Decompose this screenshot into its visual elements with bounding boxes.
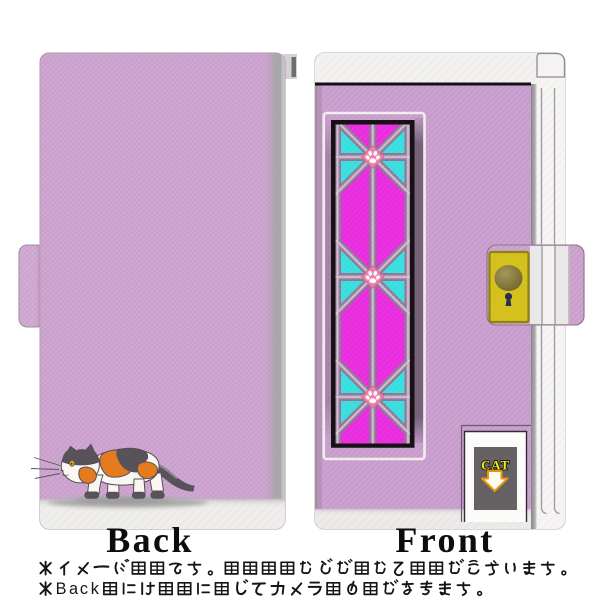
- svg-text:Front: Front: [395, 520, 494, 560]
- svg-text:B: B: [56, 580, 67, 598]
- svg-text:Back: Back: [106, 520, 194, 560]
- svg-text:c: c: [80, 580, 88, 598]
- svg-text:a: a: [69, 580, 79, 598]
- svg-text:k: k: [91, 580, 100, 598]
